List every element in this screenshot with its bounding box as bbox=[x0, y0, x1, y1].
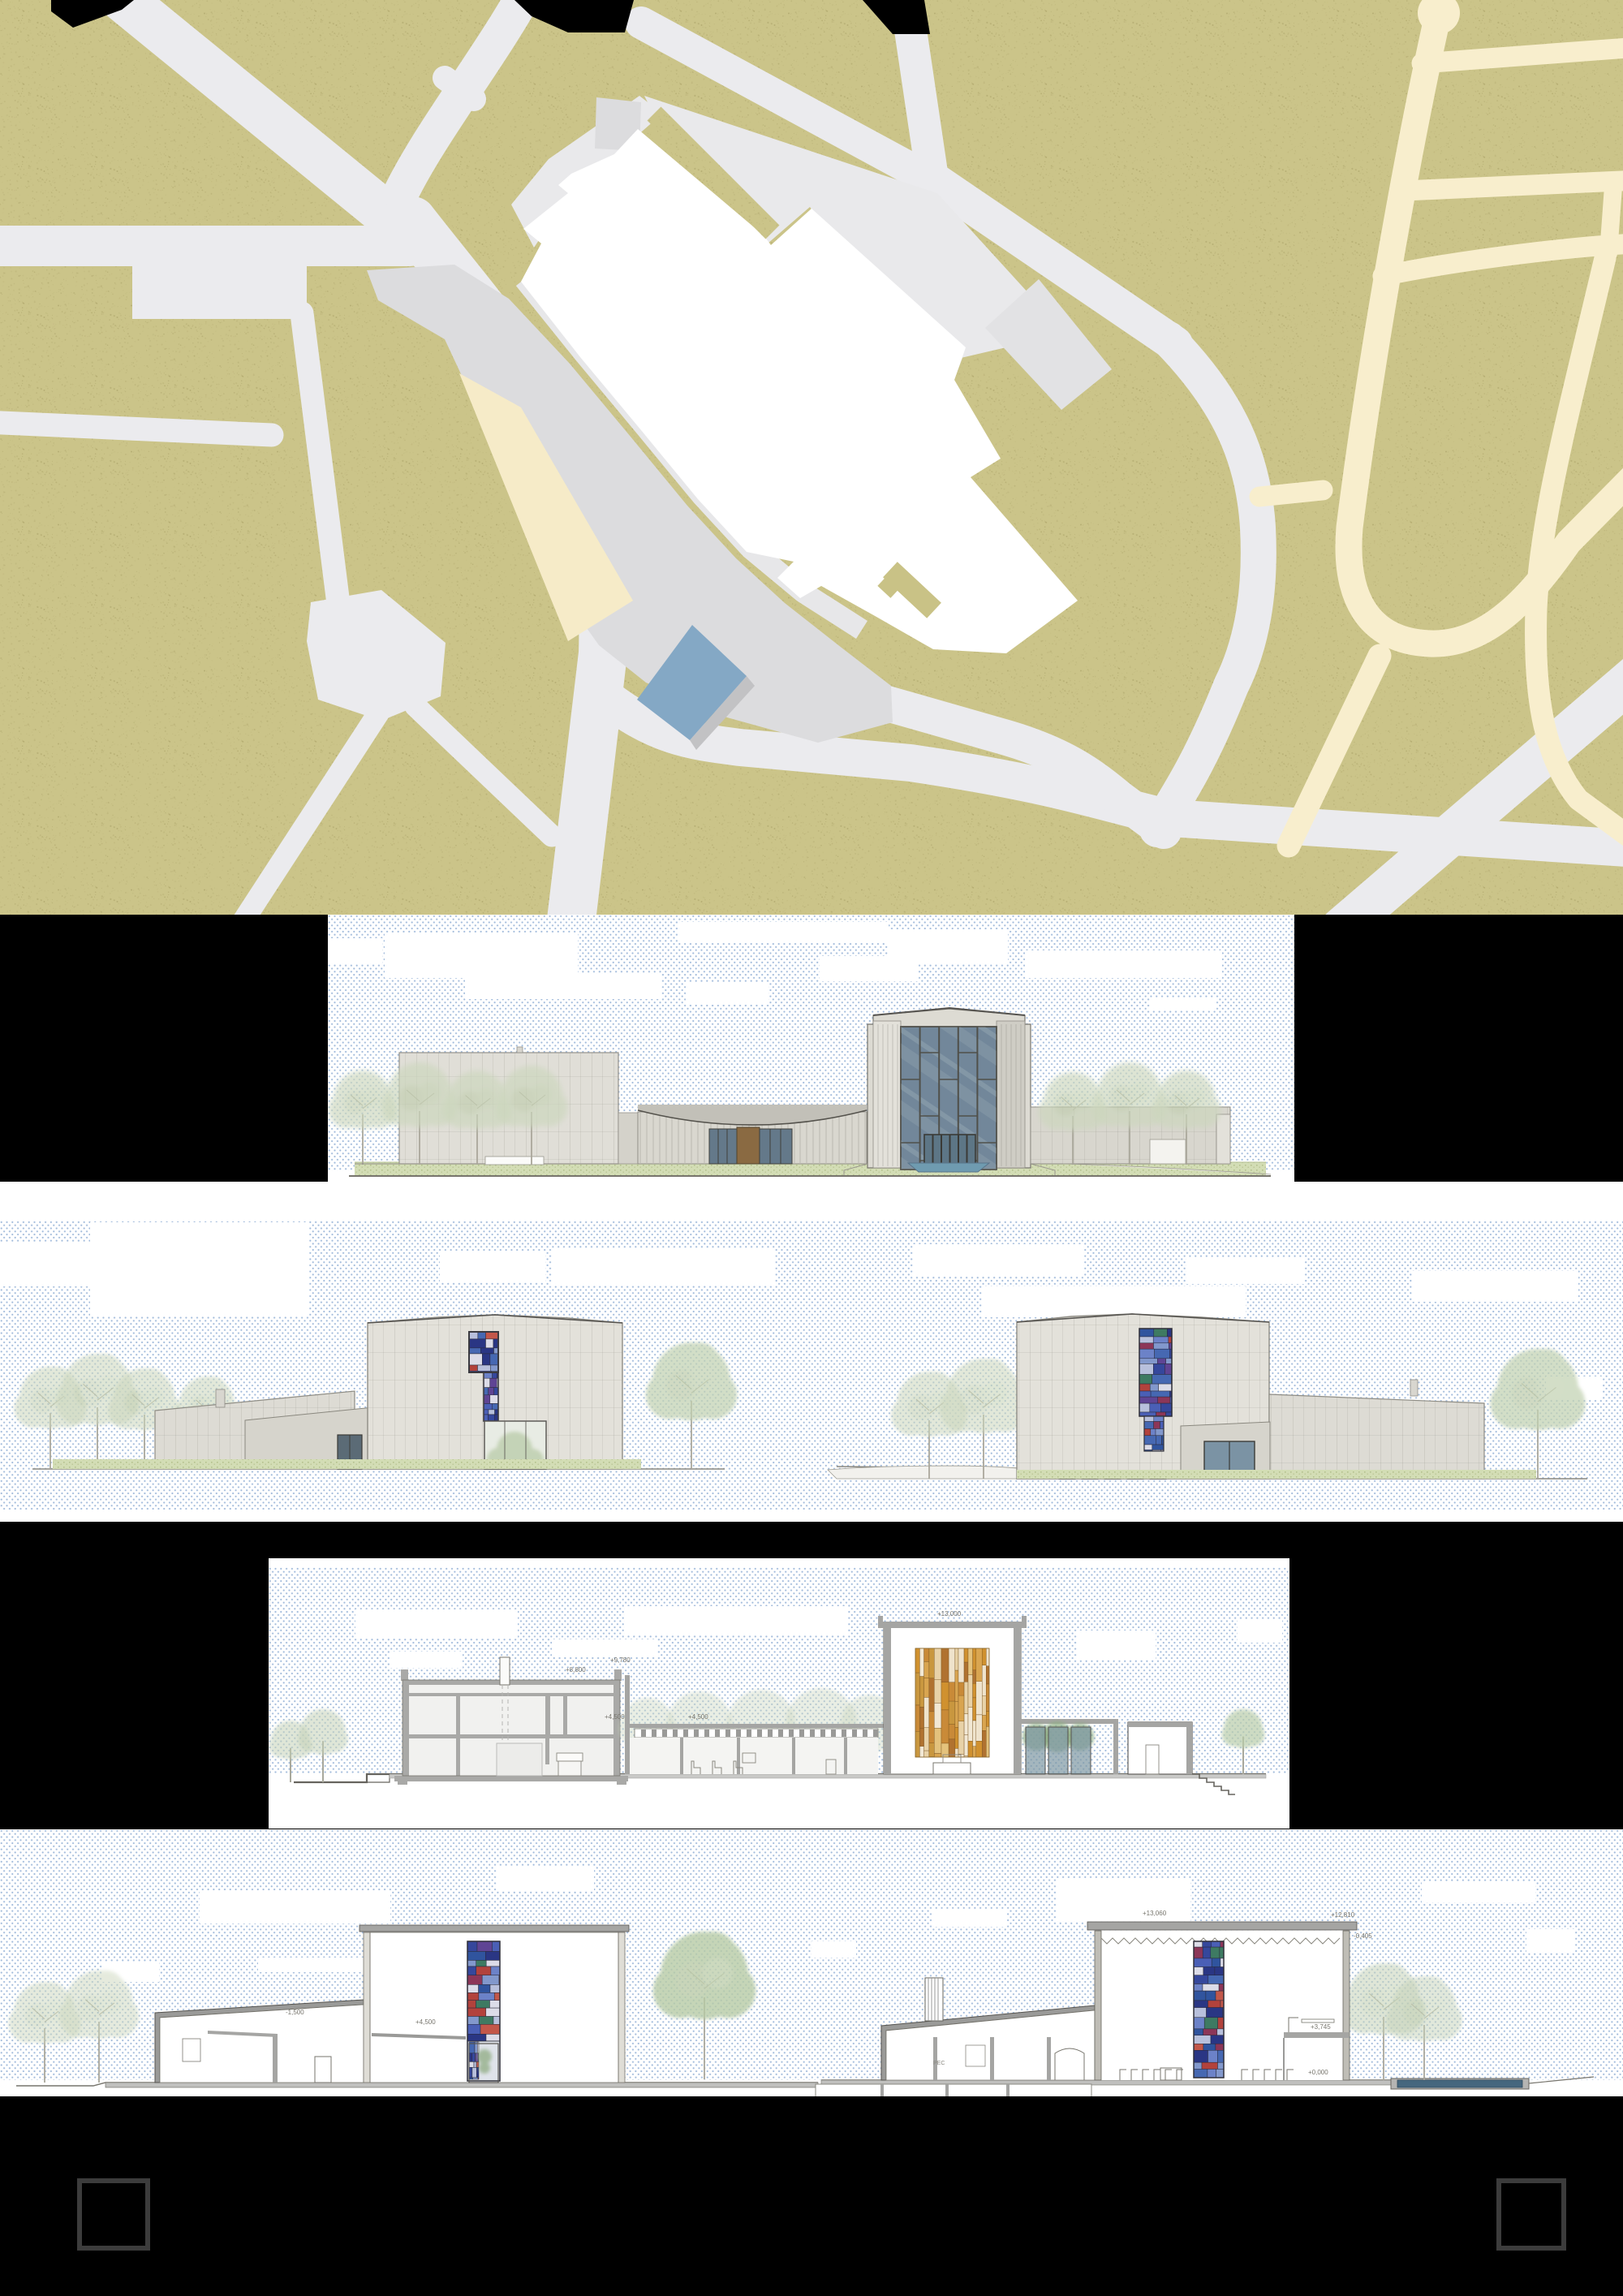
svg-text:PEC: PEC bbox=[933, 2061, 945, 2066]
svg-text:+3,745: +3,745 bbox=[1311, 2023, 1331, 2031]
svg-text:-0,405: -0,405 bbox=[1354, 1932, 1372, 1940]
svg-text:+12,810: +12,810 bbox=[1331, 1911, 1355, 1919]
svg-text:+4,500: +4,500 bbox=[605, 1713, 625, 1721]
svg-text:+4,500: +4,500 bbox=[688, 1713, 708, 1721]
svg-text:-1,500: -1,500 bbox=[286, 2009, 304, 2016]
svg-text:+13,060: +13,060 bbox=[1143, 1910, 1167, 1917]
svg-text:+9,780: +9,780 bbox=[610, 1656, 631, 1664]
svg-text:+8,800: +8,800 bbox=[566, 1666, 586, 1674]
svg-text:+4,500: +4,500 bbox=[415, 2018, 436, 2026]
svg-text:+13,000: +13,000 bbox=[937, 1610, 962, 1618]
svg-text:+0,000: +0,000 bbox=[1308, 2069, 1328, 2076]
